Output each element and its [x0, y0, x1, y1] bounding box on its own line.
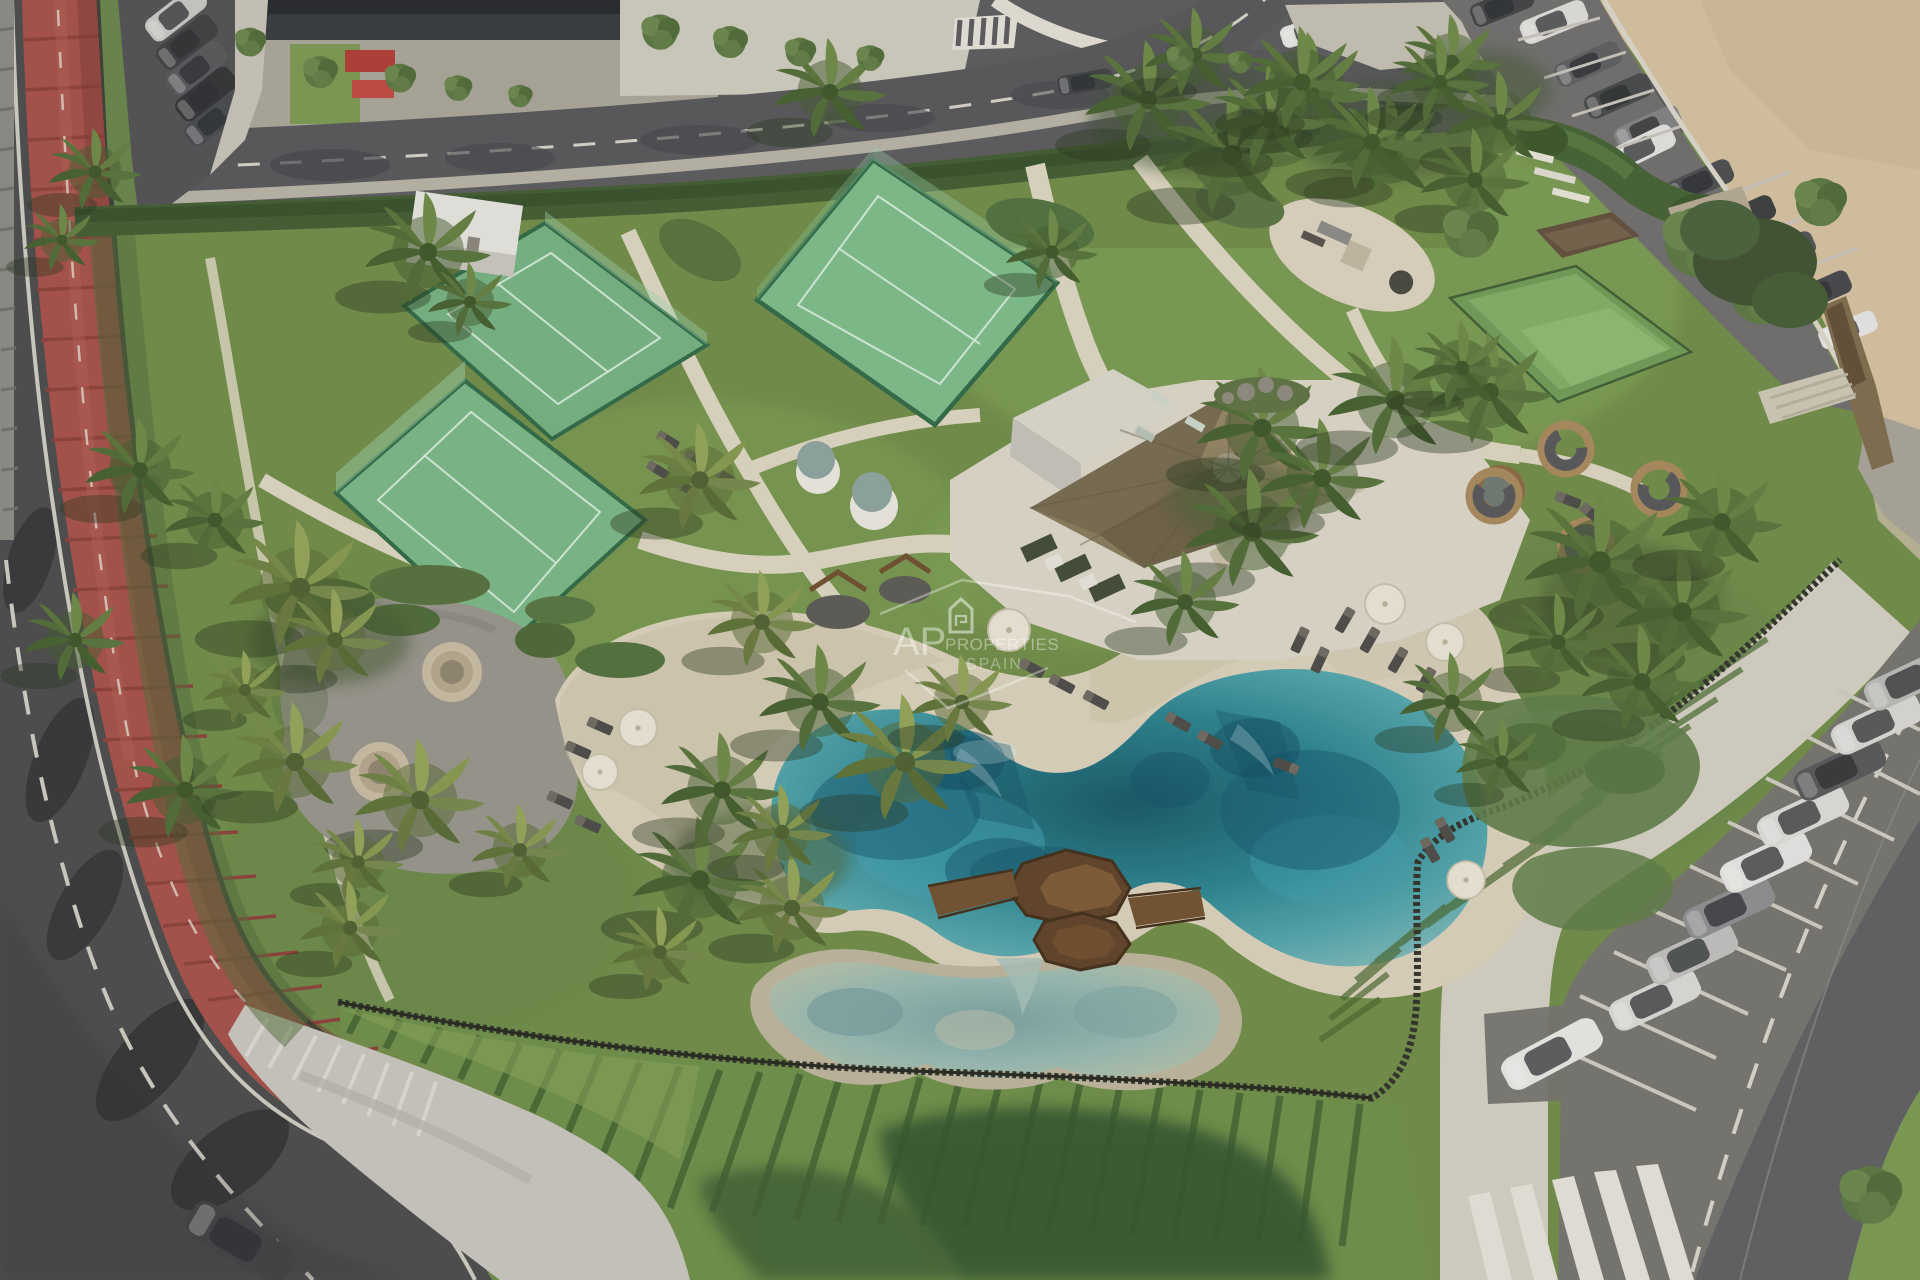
svg-text:PROPERTIES: PROPERTIES	[945, 635, 1059, 654]
svg-text:AP: AP	[893, 620, 946, 664]
svg-text:SPAIN: SPAIN	[966, 656, 1023, 673]
